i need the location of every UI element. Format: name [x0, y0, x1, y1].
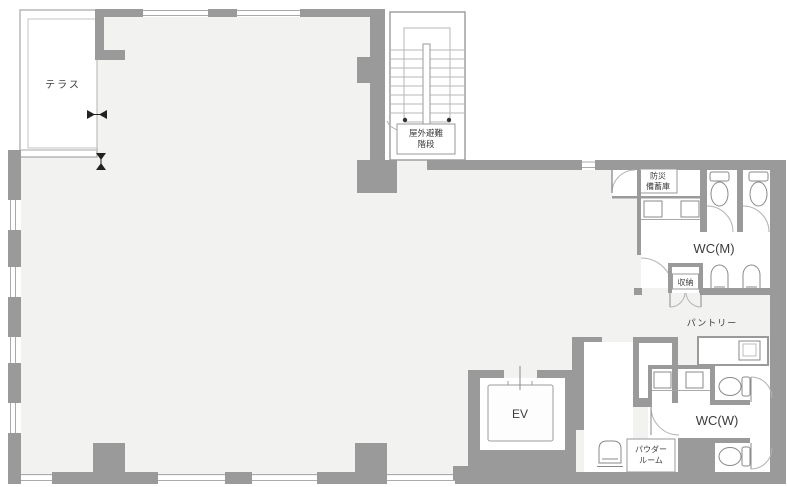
wc-women-label: WC(W)	[696, 413, 739, 428]
pillar-bottom-1	[93, 443, 125, 472]
elevator-label: EV	[512, 407, 528, 421]
pillar-right-1	[357, 57, 370, 83]
wall-left-2	[8, 230, 21, 267]
wc-women-top-wall	[648, 365, 714, 369]
wall-bottom-2	[225, 472, 252, 484]
wc-men-sink-1-icon	[644, 201, 662, 217]
floor-plan-page: テラス	[0, 0, 787, 487]
wc-women-toilet-2-icon	[719, 447, 750, 466]
floor-plan-svg: テラス	[0, 0, 787, 487]
wc-men-sink-2-icon	[681, 201, 699, 217]
wc-women-stall2-top-wall	[715, 438, 750, 443]
pillar-top-left-foot	[95, 50, 125, 60]
wall-right-top-2	[595, 160, 786, 170]
ev-wall-step	[453, 466, 468, 480]
terrace-room: テラス	[20, 10, 107, 170]
corridor-wall-cap	[572, 337, 602, 342]
wc-men-bottom-wall	[700, 288, 772, 295]
ev-wall-top-left	[468, 370, 503, 378]
stair-dot-right	[447, 118, 451, 122]
wall-left-3	[8, 297, 21, 337]
wc-men-left-wall-foot	[634, 288, 642, 295]
wc-women-stall1-wall	[710, 365, 715, 405]
elevator-block: EV	[453, 366, 576, 480]
wc-men-stall-wall-2	[737, 170, 743, 232]
wc-men-left-wall	[637, 170, 641, 255]
ev-wall-bottom	[468, 450, 576, 480]
wc-men-label: WC(M)	[693, 241, 734, 256]
wc-women-center-block	[678, 438, 715, 472]
wc-men-stall-wall-1	[700, 170, 707, 232]
utility-room	[698, 337, 768, 365]
wall-right-top-1	[427, 160, 582, 170]
wall-right	[770, 160, 786, 484]
wc-women-left-wall	[648, 369, 652, 407]
powder-sink-icon	[597, 441, 623, 467]
wc-men-toilet-2-icon	[749, 172, 768, 206]
wall-top-1	[95, 9, 143, 17]
stair-enclosure: 屋外避難階段	[387, 12, 465, 160]
wall-main-right	[370, 9, 385, 160]
wc-women-sink-2-icon	[686, 372, 703, 388]
wall-top-2	[208, 9, 237, 17]
wc-men-urinal-2-icon	[743, 265, 760, 289]
storage-label: 収納	[678, 277, 694, 287]
stair-dot-left	[403, 118, 407, 122]
terrace-label: テラス	[45, 79, 81, 91]
wall-left-4	[8, 363, 21, 403]
stair-center-rail	[423, 44, 430, 124]
disaster-storage-bottom-wall	[612, 196, 703, 199]
wc-women-stall1-bottom-wall	[710, 400, 750, 405]
ev-wall-top-right	[538, 370, 576, 378]
wall-bottom-3	[317, 472, 387, 484]
wc-men-urinal-1-icon	[711, 265, 728, 289]
pillar-bottom-2	[355, 443, 387, 472]
wall-left-1	[8, 150, 21, 200]
pillar-entry-corner	[357, 160, 397, 193]
wall-bottom-1	[52, 472, 158, 484]
wc-men-toilet-1-icon	[710, 172, 729, 206]
wall-left-5	[8, 433, 21, 484]
wc-women-sink-1-icon	[654, 372, 671, 388]
wc-women-toilet-1-icon	[719, 377, 750, 396]
corridor-wall-left	[572, 337, 584, 430]
pantry-label: パントリー	[687, 318, 737, 328]
